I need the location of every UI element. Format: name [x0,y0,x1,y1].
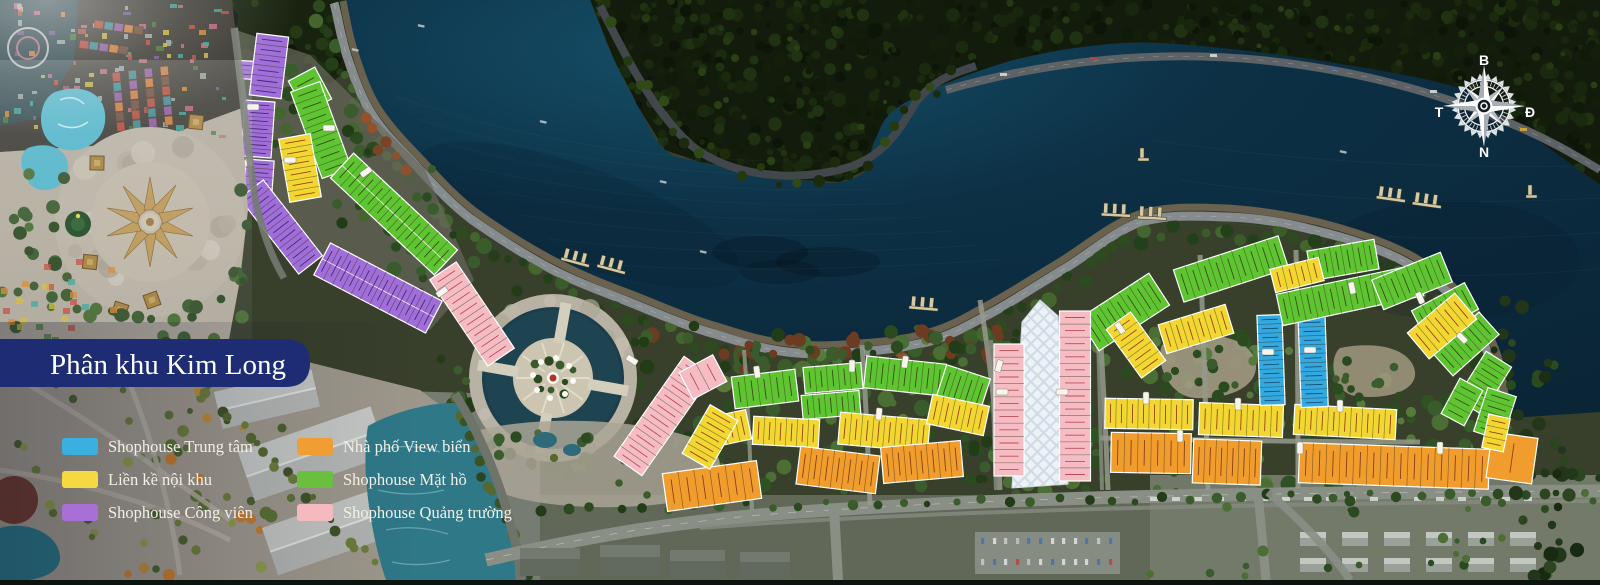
svg-text:B: B [1479,52,1489,68]
svg-text:Shophouse Trung tâm: Shophouse Trung tâm [108,437,253,456]
svg-text:T: T [1435,104,1444,120]
svg-text:Đ: Đ [1525,104,1535,120]
svg-text:Liền kề nội khu: Liền kề nội khu [108,470,212,489]
svg-text:N: N [1479,144,1489,160]
svg-text:Nhà phố View biển: Nhà phố View biển [343,437,470,456]
svg-text:Shophouse Công viên: Shophouse Công viên [108,503,253,522]
svg-text:Shophouse Mặt hồ: Shophouse Mặt hồ [343,470,467,489]
svg-text:Shophouse Quảng trường: Shophouse Quảng trường [343,503,512,522]
svg-text:Phân khu Kim Long: Phân khu Kim Long [50,349,286,381]
